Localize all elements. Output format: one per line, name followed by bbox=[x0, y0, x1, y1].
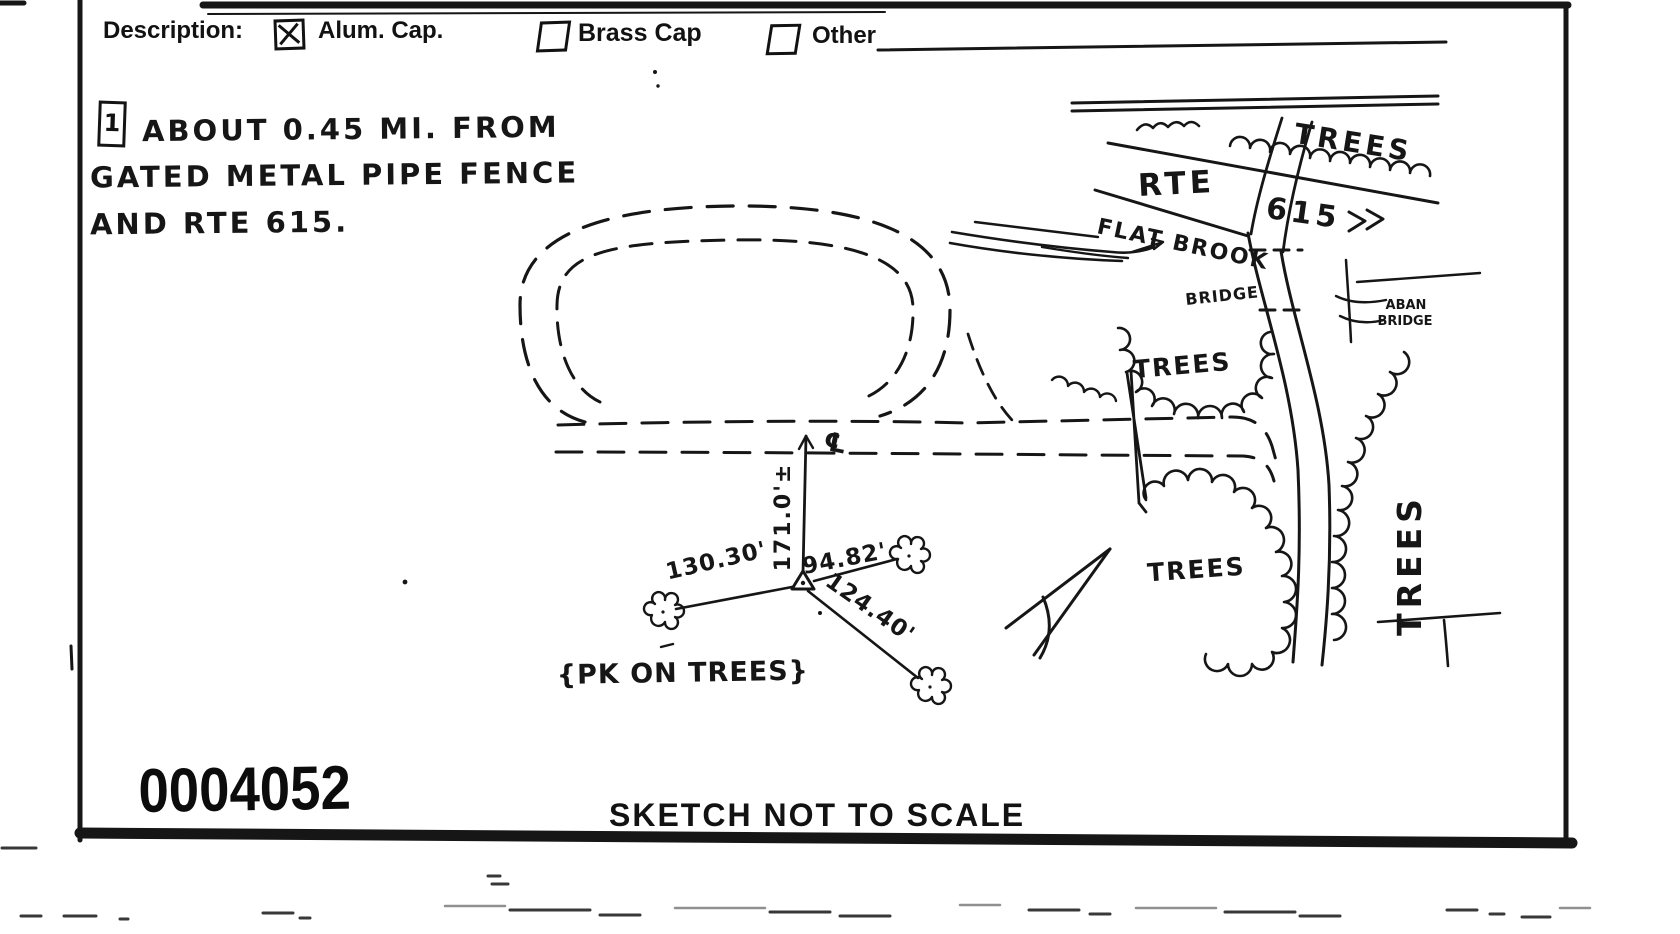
label-route: RTE bbox=[1137, 164, 1216, 204]
label-aban-bridge-line2: BRIDGE bbox=[1377, 314, 1432, 329]
road-branch-dashed bbox=[968, 334, 1018, 426]
note-item-marker: 1 bbox=[97, 101, 127, 148]
scanned-survey-sketch: TREES RTE 615 FLAT BROOK BRIDGE ABAN BRI… bbox=[0, 0, 1680, 934]
other-underline bbox=[878, 42, 1446, 50]
label-pk-note: {PK ON TREES} bbox=[557, 656, 810, 691]
noise-dashes bbox=[2, 848, 1550, 919]
monument-dot bbox=[801, 581, 805, 585]
label-trees-right: TREES bbox=[1390, 494, 1429, 636]
fence-post-line bbox=[1444, 620, 1448, 666]
tree-scallop-small bbox=[1052, 377, 1116, 401]
top-road-line-1 bbox=[1072, 96, 1438, 103]
tie-centerline-line bbox=[803, 436, 806, 573]
north-south-road bbox=[1248, 233, 1351, 665]
scan-noise bbox=[2, 848, 1590, 919]
label-dist-diagonal: 124.40' bbox=[820, 568, 919, 648]
north-arrow-leg bbox=[1006, 549, 1110, 628]
note-line: ABOUT 0.45 MI. FROM bbox=[142, 110, 560, 148]
description-label: Description: bbox=[103, 17, 243, 45]
tree-cloud bbox=[644, 592, 684, 629]
label-trees-lower: TREES bbox=[1146, 552, 1246, 588]
label-flat-brook: FLAT BROOK bbox=[1095, 214, 1272, 275]
tie-line-left bbox=[676, 587, 792, 609]
north-arrow bbox=[1006, 549, 1110, 658]
border-top-thin bbox=[208, 12, 885, 14]
stamp-number: 0004052 bbox=[138, 753, 351, 827]
tick-mark bbox=[661, 644, 673, 647]
border-bottom bbox=[80, 833, 1572, 843]
label-trees-mid: TREES bbox=[1132, 347, 1233, 384]
tree-symbol bbox=[890, 536, 930, 573]
north-arrow-bow bbox=[1040, 597, 1049, 658]
tree-symbol bbox=[644, 592, 684, 629]
margin-tick bbox=[71, 646, 72, 669]
label-route-number: 615 bbox=[1264, 191, 1343, 236]
top-road-line-2 bbox=[1072, 104, 1438, 111]
label-aban-bridge-line1: ABAN bbox=[1386, 298, 1427, 313]
label-bridge: BRIDGE bbox=[1184, 282, 1259, 309]
scan-dots bbox=[403, 70, 822, 615]
brook-east-line bbox=[1336, 296, 1386, 302]
route-direction-arrow bbox=[1349, 210, 1383, 231]
checkbox-brass-cap bbox=[536, 20, 572, 52]
tree-dot bbox=[907, 554, 910, 557]
note-line: GATED METAL PIPE FENCE bbox=[90, 155, 580, 194]
label-trees-top: TREES bbox=[1292, 117, 1415, 168]
loop-road-dashed bbox=[520, 206, 950, 422]
dot bbox=[653, 70, 657, 74]
checkbox-label-alum-cap: Alum. Cap. bbox=[318, 17, 443, 45]
loop-inner bbox=[557, 240, 913, 402]
scale-note: SKETCH NOT TO SCALE bbox=[609, 797, 1025, 834]
label-centerline-symbol: ℄ bbox=[821, 427, 850, 461]
label-dist-left: 130.30' bbox=[663, 537, 769, 585]
tree-cloud bbox=[890, 536, 930, 573]
note-line: AND RTE 615. bbox=[90, 205, 349, 242]
dot bbox=[818, 611, 822, 615]
dot bbox=[403, 580, 408, 585]
fence-line-upper bbox=[1357, 273, 1480, 282]
tree-squiggle-top bbox=[1137, 122, 1199, 130]
checkbox-label-brass-cap: Brass Cap bbox=[578, 19, 702, 48]
tree-dot bbox=[661, 610, 664, 613]
brook-line bbox=[975, 222, 1098, 237]
checkbox-label-other: Other bbox=[812, 22, 876, 50]
label-dist-centerline: 171.0'± bbox=[771, 463, 796, 572]
noise-dashes-faint bbox=[445, 905, 1590, 908]
checkbox-alum-cap bbox=[273, 18, 305, 50]
checkbox-other bbox=[765, 24, 801, 56]
tree-cloud bbox=[911, 667, 951, 704]
sketch-labels: TREES RTE 615 FLAT BROOK BRIDGE ABAN BRI… bbox=[557, 117, 1433, 691]
tree-dot bbox=[928, 685, 931, 688]
tree-symbol bbox=[911, 667, 951, 704]
checkbox-x-mark-icon bbox=[277, 22, 303, 48]
dot bbox=[656, 84, 659, 87]
